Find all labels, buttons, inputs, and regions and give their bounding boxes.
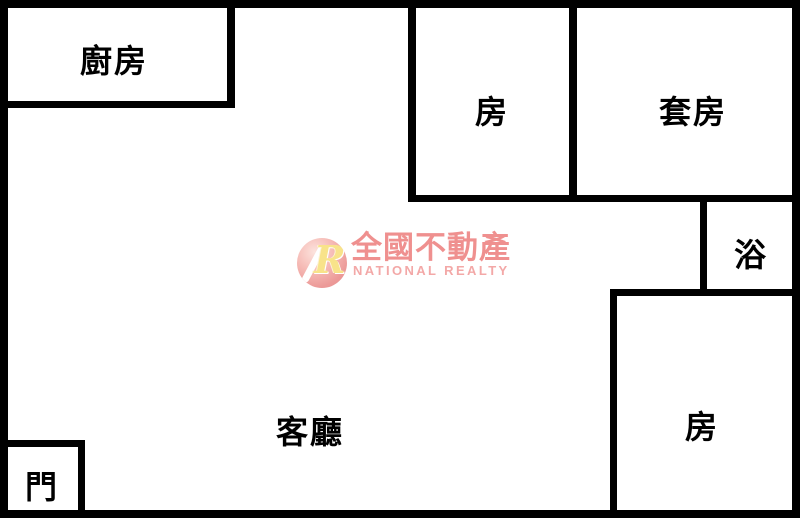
wall-door-top <box>0 440 85 447</box>
logo-subtitle-text: NATIONAL REALTY <box>353 264 510 277</box>
room-label-living-room: 客廳 <box>276 416 344 448</box>
wall-kitchen-bottom <box>0 101 235 108</box>
wall-top-rooms-bottom <box>408 195 800 202</box>
wall-bedroom-bottom-left <box>610 289 617 518</box>
wall-outer-right <box>792 0 800 518</box>
wall-bath-left <box>700 202 707 296</box>
wall-bedroom-suite-divider <box>569 0 577 202</box>
wall-bedroom-bottom-top <box>610 289 800 296</box>
room-label-bedroom-bottom: 房 <box>685 411 719 443</box>
room-label-bedroom-top: 房 <box>475 96 509 128</box>
wall-bedroom-top-left <box>408 0 416 202</box>
room-label-kitchen: 廚房 <box>80 45 148 77</box>
wall-outer-bottom <box>0 510 800 518</box>
room-label-door: 門 <box>25 471 59 503</box>
logo-monogram-icon: R <box>297 238 347 288</box>
floor-plan: 廚房 房 套房 浴 房 客廳 門 R 全國不動產 NATIONAL REALTY <box>0 0 800 520</box>
wall-kitchen-right <box>227 0 235 108</box>
wall-outer-top <box>0 0 800 8</box>
logo-monogram-letter: R <box>314 241 346 279</box>
room-label-suite: 套房 <box>659 96 727 128</box>
wall-door-right <box>78 440 85 518</box>
brand-logo: R 全國不動產 NATIONAL REALTY <box>296 231 516 291</box>
room-label-bath: 浴 <box>734 239 768 271</box>
logo-brand-text: 全國不動產 <box>351 232 511 263</box>
